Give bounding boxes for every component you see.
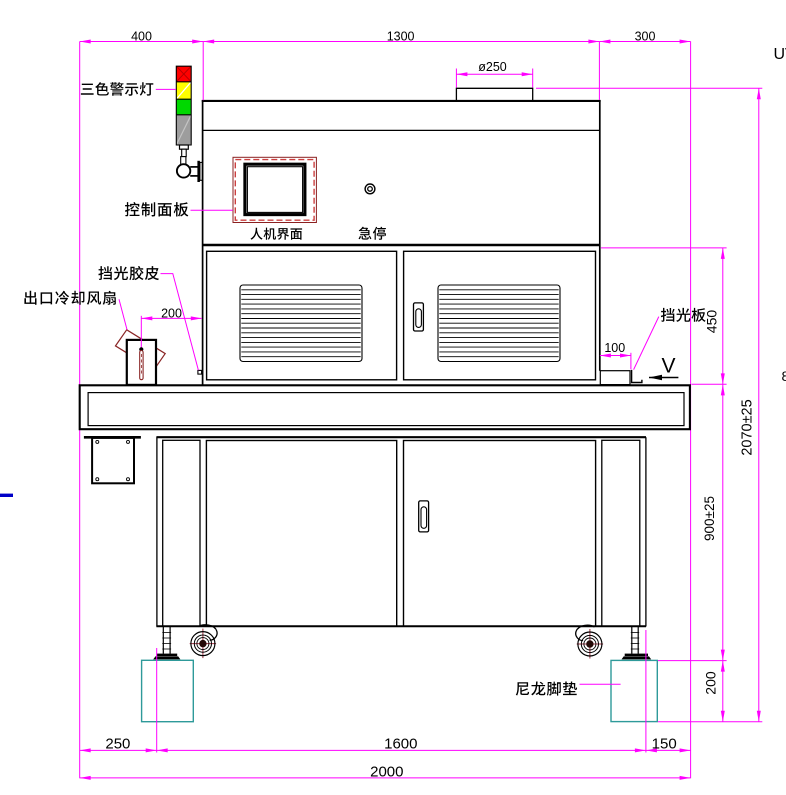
- svg-text:150: 150: [652, 735, 677, 752]
- svg-text:900±25: 900±25: [702, 496, 717, 541]
- svg-text:1300: 1300: [387, 30, 415, 44]
- svg-text:100: 100: [604, 341, 625, 355]
- svg-text:200: 200: [161, 306, 182, 320]
- svg-text:UV: UV: [774, 46, 786, 63]
- svg-text:V: V: [662, 355, 676, 378]
- svg-text:2000: 2000: [370, 763, 403, 780]
- svg-text:450: 450: [703, 310, 719, 334]
- svg-text:400: 400: [131, 30, 152, 44]
- svg-text:300: 300: [635, 30, 656, 44]
- svg-text:1600: 1600: [384, 735, 417, 752]
- svg-text:2070±25: 2070±25: [740, 399, 756, 455]
- svg-text:ø250: ø250: [478, 60, 507, 74]
- svg-text:250: 250: [105, 735, 130, 752]
- svg-text:8: 8: [782, 368, 786, 384]
- svg-text:200: 200: [703, 671, 719, 695]
